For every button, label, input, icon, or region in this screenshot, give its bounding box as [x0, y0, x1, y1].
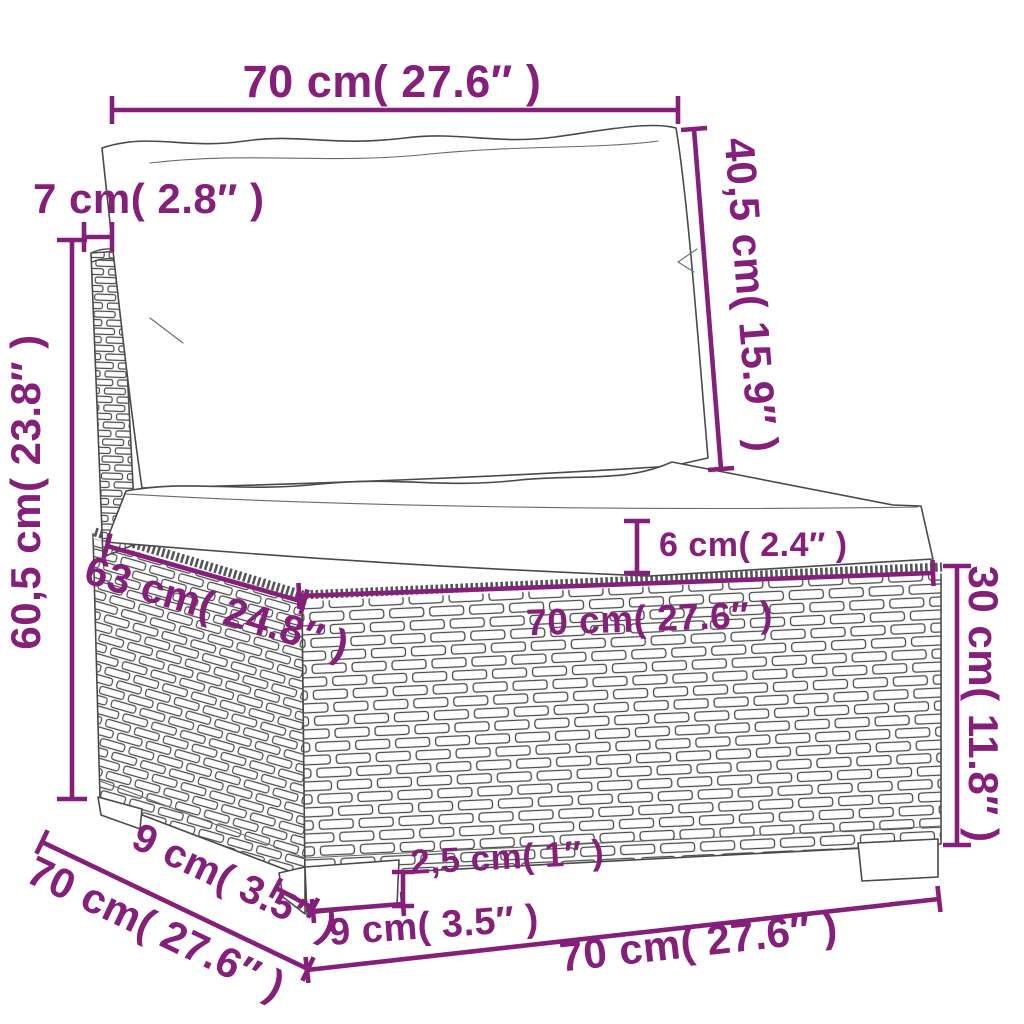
dim-back-cushion-width-label: 70 cm( 27.6″ ) [243, 56, 542, 107]
dim-back-frame-thickness-label: 7 cm( 2.8″ ) [33, 175, 265, 222]
sofa-dimension-diagram: 70 cm( 27.6″ ) 40,5 cm( 15.9″ ) 7 cm( 2.… [0, 0, 1024, 1024]
dim-seat-width-label: 70 cm( 27.6″ ) [525, 594, 773, 644]
dim-base-height-label: 30 cm( 11.8″ ) [960, 566, 1007, 843]
dimension-diagram-page: 70 cm( 27.6″ ) 40,5 cm( 15.9″ ) 7 cm( 2.… [0, 0, 1024, 1024]
dim-foot-height: 2,5 cm( 1″ ) [392, 833, 605, 906]
dim-back-cushion-width: 70 cm( 27.6″ ) [112, 56, 678, 124]
dim-back-cushion-height-label: 40,5 cm( 15.9″ ) [716, 136, 788, 454]
dim-total-height-label: 60,5 cm( 23.8″ ) [2, 334, 49, 649]
dim-seat-cushion-thickness-label: 6 cm( 2.4″ ) [659, 526, 848, 564]
dim-total-height: 60,5 cm( 23.8″ ) [2, 240, 87, 799]
front-right-leg [858, 839, 938, 881]
dim-base-height: 30 cm( 11.8″ ) [943, 566, 1007, 845]
dim-overall-width-label: 70 cm( 27.6″ ) [557, 903, 840, 981]
